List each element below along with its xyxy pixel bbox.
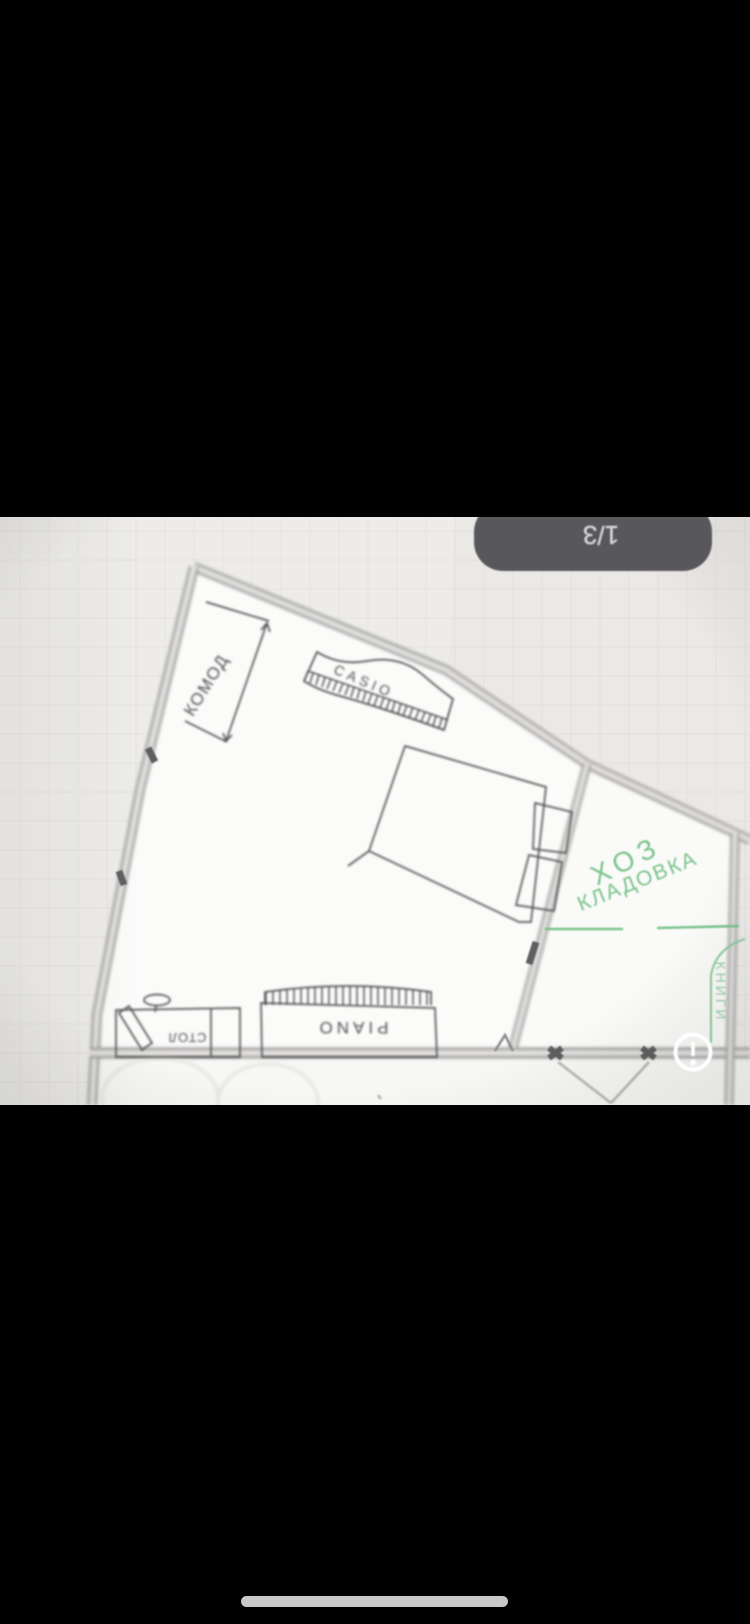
svg-text:1/3: 1/3 [583, 520, 619, 550]
